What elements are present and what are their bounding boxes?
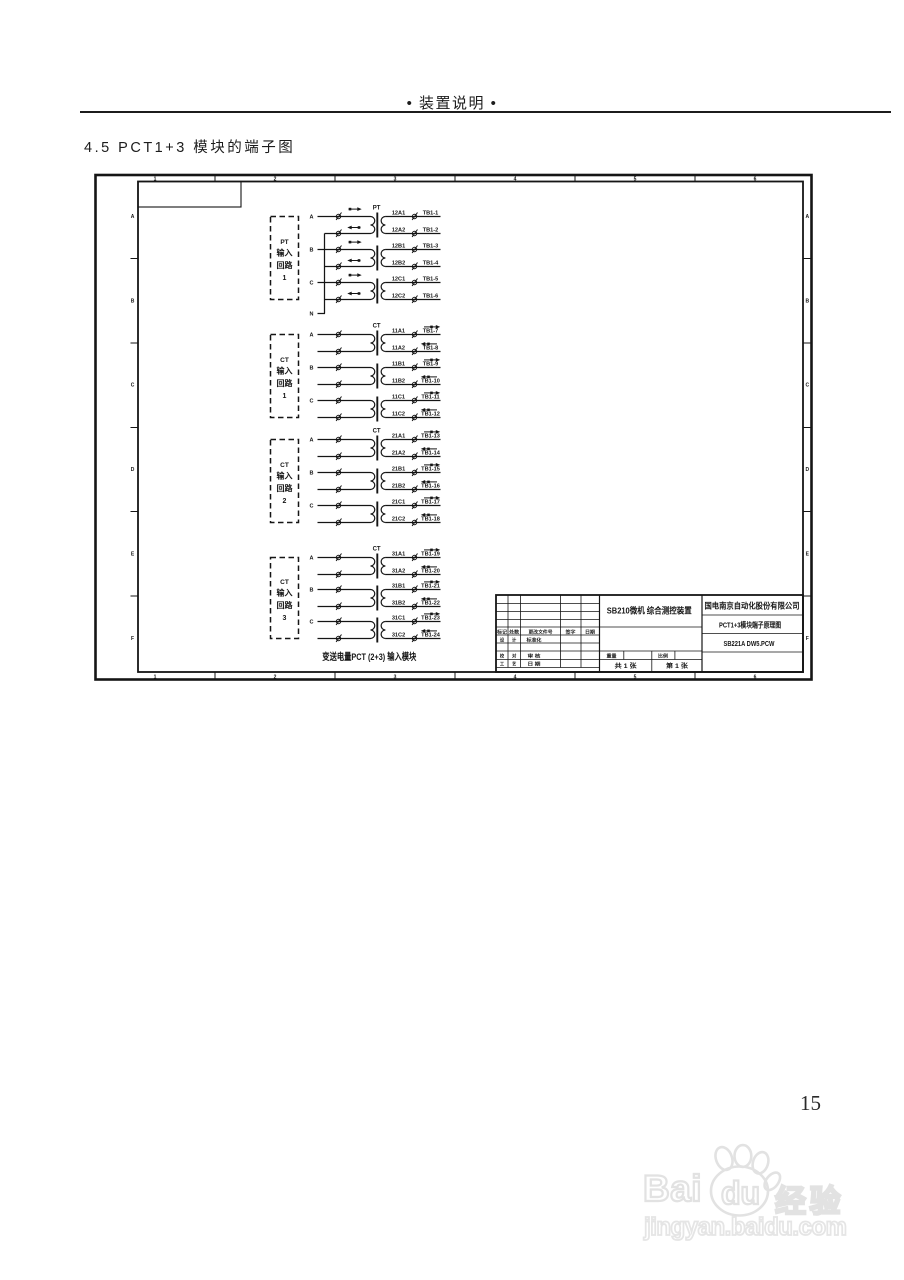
svg-text:艺: 艺 <box>512 661 517 668</box>
svg-text:31C1: 31C1 <box>392 616 405 622</box>
svg-text:1: 1 <box>154 177 157 183</box>
svg-text:C: C <box>131 383 135 389</box>
svg-text:12A1: 12A1 <box>392 211 405 217</box>
svg-text:TB1-1: TB1-1 <box>423 211 439 217</box>
svg-text:回路: 回路 <box>277 483 294 493</box>
svg-text:TB1-20: TB1-20 <box>421 569 440 575</box>
svg-text:CT: CT <box>280 579 289 586</box>
svg-text:PT: PT <box>280 239 288 246</box>
svg-text:12B2: 12B2 <box>392 261 405 267</box>
svg-text:11B2: 11B2 <box>392 379 405 385</box>
svg-text:对: 对 <box>512 653 517 660</box>
svg-text:CT: CT <box>373 428 381 434</box>
svg-text:12C2: 12C2 <box>392 294 405 300</box>
svg-text:5: 5 <box>634 177 637 183</box>
svg-text:B: B <box>131 298 135 304</box>
svg-text:TB1-23: TB1-23 <box>421 616 440 622</box>
svg-text:输入: 输入 <box>277 248 293 258</box>
svg-text:C: C <box>310 504 314 510</box>
svg-text:12B1: 12B1 <box>392 244 405 250</box>
svg-text:TB1-17: TB1-17 <box>421 500 440 506</box>
svg-text:标准化: 标准化 <box>525 636 542 643</box>
svg-text:A: A <box>310 215 314 221</box>
svg-text:设: 设 <box>500 636 505 643</box>
svg-text:31C2: 31C2 <box>392 633 405 639</box>
svg-text:1: 1 <box>283 393 287 400</box>
svg-text:D: D <box>805 467 809 473</box>
svg-text:工: 工 <box>500 662 505 668</box>
svg-text:21B2: 21B2 <box>392 484 405 490</box>
svg-text:31B1: 31B1 <box>392 584 405 590</box>
svg-text:国电南京自动化股份有限公司: 国电南京自动化股份有限公司 <box>705 601 800 611</box>
svg-text:3: 3 <box>394 674 397 680</box>
svg-text:B: B <box>310 248 314 254</box>
svg-text:TB1-5: TB1-5 <box>423 277 439 283</box>
svg-text:4: 4 <box>514 177 517 183</box>
svg-text:重量: 重量 <box>607 652 617 659</box>
svg-text:21A2: 21A2 <box>392 451 405 457</box>
svg-text:11C2: 11C2 <box>392 412 405 418</box>
svg-text:第 1 张: 第 1 张 <box>665 662 689 670</box>
svg-text:E: E <box>131 551 135 557</box>
svg-text:21C2: 21C2 <box>392 517 405 523</box>
svg-text:输入: 输入 <box>277 471 293 481</box>
svg-text:B: B <box>805 298 809 304</box>
svg-text:4: 4 <box>514 674 517 680</box>
svg-text:TB1-6: TB1-6 <box>423 294 439 300</box>
svg-text:5: 5 <box>634 674 637 680</box>
svg-text:F: F <box>806 636 809 642</box>
svg-text:CT: CT <box>280 462 289 469</box>
svg-text:TB1-16: TB1-16 <box>421 484 440 490</box>
svg-text:TB1-2: TB1-2 <box>423 228 439 234</box>
svg-text:N: N <box>310 312 314 318</box>
svg-text:比例: 比例 <box>658 652 668 659</box>
svg-text:21C1: 21C1 <box>392 500 405 506</box>
svg-text:TB1-14: TB1-14 <box>421 451 441 457</box>
svg-text:11A2: 11A2 <box>392 346 405 352</box>
svg-text:1: 1 <box>154 674 157 680</box>
svg-text:21B1: 21B1 <box>392 467 405 473</box>
svg-text:共 1 张: 共 1 张 <box>615 662 638 670</box>
svg-text:TB1-9: TB1-9 <box>423 362 439 368</box>
svg-text:签字: 签字 <box>564 628 576 635</box>
svg-text:TB1-4: TB1-4 <box>423 261 439 267</box>
svg-text:TB1-24: TB1-24 <box>421 633 441 639</box>
svg-text:31A1: 31A1 <box>392 552 405 558</box>
svg-text:11C1: 11C1 <box>392 395 405 401</box>
svg-text:E: E <box>806 551 810 557</box>
svg-text:PCT1+3模块端子原理图: PCT1+3模块端子原理图 <box>719 619 781 629</box>
svg-text:1: 1 <box>283 275 287 282</box>
svg-text:C: C <box>310 620 314 626</box>
svg-text:TB1-19: TB1-19 <box>421 552 440 558</box>
svg-text:31B2: 31B2 <box>392 601 405 607</box>
svg-text:21A1: 21A1 <box>392 434 405 440</box>
svg-text:CT: CT <box>373 323 381 329</box>
svg-text:SB221A DW5.PCW: SB221A DW5.PCW <box>724 641 775 648</box>
svg-text:TB1-8: TB1-8 <box>423 346 439 352</box>
svg-text:B: B <box>310 588 314 594</box>
svg-text:B: B <box>310 366 314 372</box>
svg-text:TB1-3: TB1-3 <box>423 244 439 250</box>
svg-text:PT: PT <box>373 205 381 211</box>
svg-text:输入: 输入 <box>277 588 293 598</box>
svg-text:TB1-13: TB1-13 <box>421 434 440 440</box>
svg-text:C: C <box>805 383 809 389</box>
svg-text:校: 校 <box>500 653 505 660</box>
svg-text:TB1-12: TB1-12 <box>421 412 440 418</box>
svg-text:TB1-18: TB1-18 <box>421 517 440 523</box>
svg-text:更改文件号: 更改文件号 <box>529 628 554 635</box>
svg-text:TB1-22: TB1-22 <box>421 601 440 607</box>
svg-text:输入: 输入 <box>277 366 293 376</box>
svg-text:12C1: 12C1 <box>392 277 405 283</box>
svg-text:标记: 标记 <box>496 628 508 635</box>
svg-text:处数: 处数 <box>508 628 520 635</box>
svg-text:12A2: 12A2 <box>392 228 405 234</box>
svg-text:回路: 回路 <box>277 600 294 610</box>
svg-text:6: 6 <box>754 674 757 680</box>
svg-text:3: 3 <box>394 177 397 183</box>
svg-text:计: 计 <box>512 636 517 643</box>
svg-text:3: 3 <box>283 615 287 622</box>
svg-text:TB1-7: TB1-7 <box>423 329 439 335</box>
svg-text:2: 2 <box>274 177 277 183</box>
svg-text:CT: CT <box>373 546 381 552</box>
svg-text:TB1-11: TB1-11 <box>421 395 439 401</box>
svg-text:D: D <box>131 467 135 473</box>
svg-text:11B1: 11B1 <box>392 362 405 368</box>
svg-text:C: C <box>310 399 314 405</box>
svg-text:C: C <box>310 281 314 287</box>
svg-text:A: A <box>805 214 809 220</box>
svg-text:B: B <box>310 471 314 477</box>
svg-text:日期: 日期 <box>585 628 596 635</box>
svg-text:2: 2 <box>283 498 287 505</box>
svg-text:变送电量PCT (2+3) 输入模块: 变送电量PCT (2+3) 输入模块 <box>322 651 416 662</box>
svg-text:SB210微机 综合测控装置: SB210微机 综合测控装置 <box>607 606 692 616</box>
svg-text:A: A <box>131 214 135 220</box>
svg-text:回路: 回路 <box>277 378 294 388</box>
svg-text:日 期: 日 期 <box>528 661 542 668</box>
svg-text:2: 2 <box>274 674 277 680</box>
svg-text:31A2: 31A2 <box>392 569 405 575</box>
svg-text:审 核: 审 核 <box>528 653 542 660</box>
svg-text:A: A <box>310 556 314 562</box>
svg-text:回路: 回路 <box>277 260 294 270</box>
svg-text:TB1-10: TB1-10 <box>421 379 440 385</box>
svg-text:CT: CT <box>280 357 289 364</box>
svg-text:A: A <box>310 333 314 339</box>
svg-text:F: F <box>131 636 134 642</box>
svg-text:TB1-15: TB1-15 <box>421 467 440 473</box>
svg-text:11A1: 11A1 <box>392 329 405 335</box>
svg-text:6: 6 <box>754 177 757 183</box>
svg-text:TB1-21: TB1-21 <box>421 584 440 590</box>
svg-text:A: A <box>310 438 314 444</box>
